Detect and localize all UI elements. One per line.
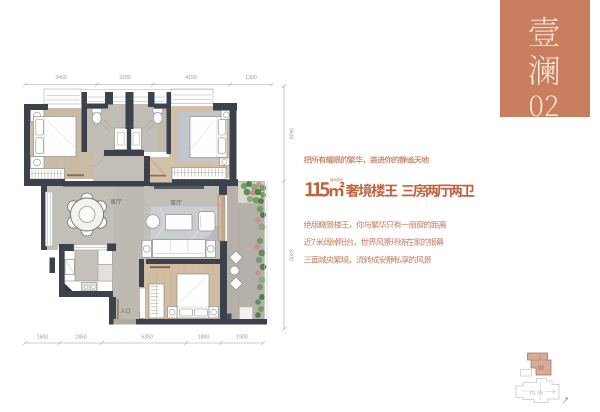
svg-text:2450: 2450 [75,335,87,341]
svg-text:01 05: 01 05 [530,391,544,397]
svg-text:02: 02 [538,365,544,371]
svg-text:6300: 6300 [288,249,294,261]
svg-text:1300: 1300 [245,75,257,81]
svg-text:1800: 1800 [198,335,210,341]
svg-text:5350: 5350 [141,335,153,341]
svg-text:4150: 4150 [185,75,197,81]
svg-text:1900: 1900 [236,335,248,341]
svg-text:2200: 2200 [119,75,131,81]
svg-text:3600: 3600 [288,128,294,140]
svg-text:1600: 1600 [37,335,49,341]
svg-text:3450: 3450 [55,75,67,81]
